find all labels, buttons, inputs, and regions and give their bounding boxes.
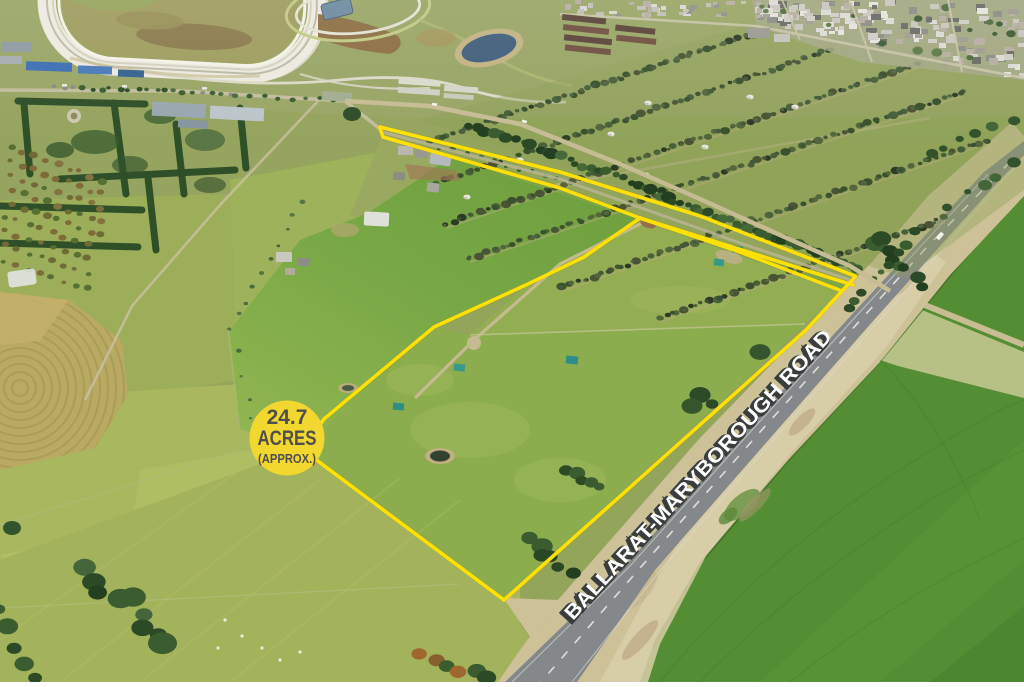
svg-text:24.7: 24.7 (267, 406, 308, 429)
svg-text:ACRES: ACRES (258, 427, 317, 450)
svg-text:(APPROX.): (APPROX.) (258, 452, 316, 466)
